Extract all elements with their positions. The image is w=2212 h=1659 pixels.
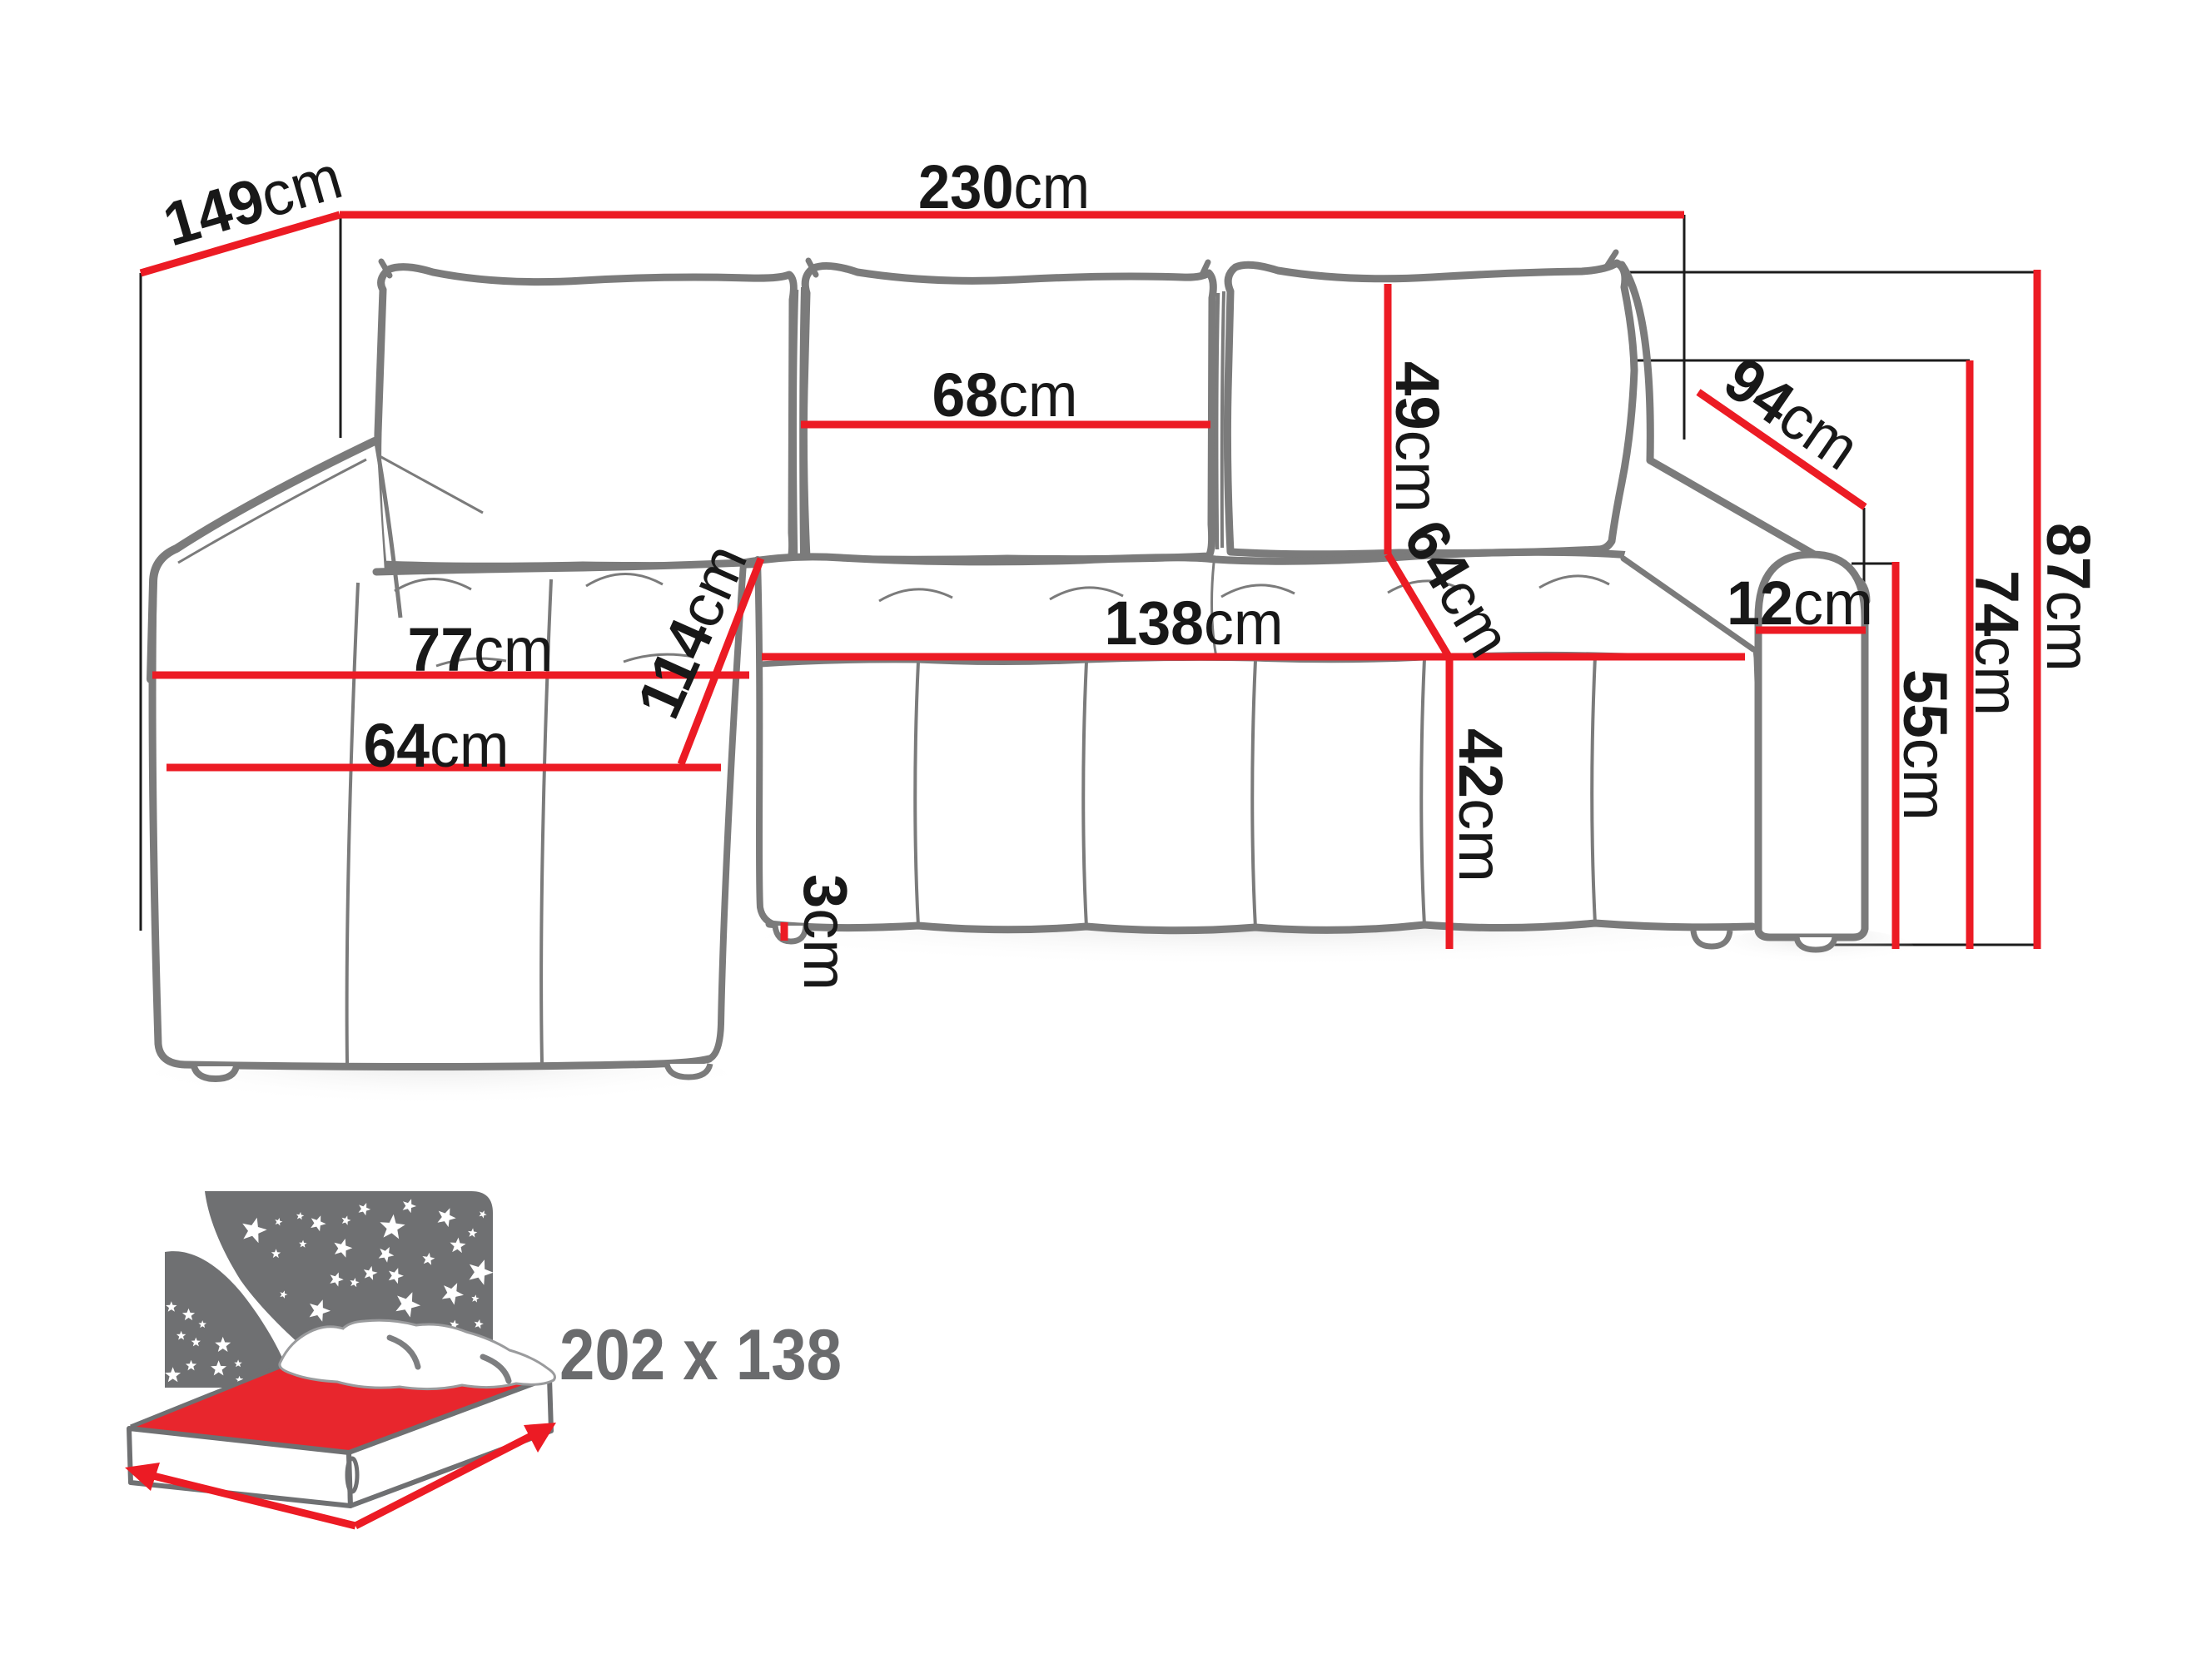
- svg-text:64cm: 64cm: [364, 711, 510, 780]
- svg-text:202 x 138: 202 x 138: [559, 1315, 842, 1395]
- svg-text:68cm: 68cm: [932, 360, 1078, 430]
- svg-text:74cm: 74cm: [1962, 570, 2031, 716]
- svg-text:230cm: 230cm: [918, 152, 1090, 221]
- svg-text:3cm: 3cm: [791, 874, 860, 991]
- svg-text:77cm: 77cm: [408, 615, 554, 684]
- svg-text:12cm: 12cm: [1727, 569, 1873, 638]
- svg-text:87cm: 87cm: [2034, 523, 2103, 672]
- svg-text:138cm: 138cm: [1105, 589, 1284, 658]
- svg-text:42cm: 42cm: [1446, 728, 1515, 882]
- svg-text:49cm: 49cm: [1383, 361, 1452, 513]
- svg-text:55cm: 55cm: [1891, 669, 1960, 821]
